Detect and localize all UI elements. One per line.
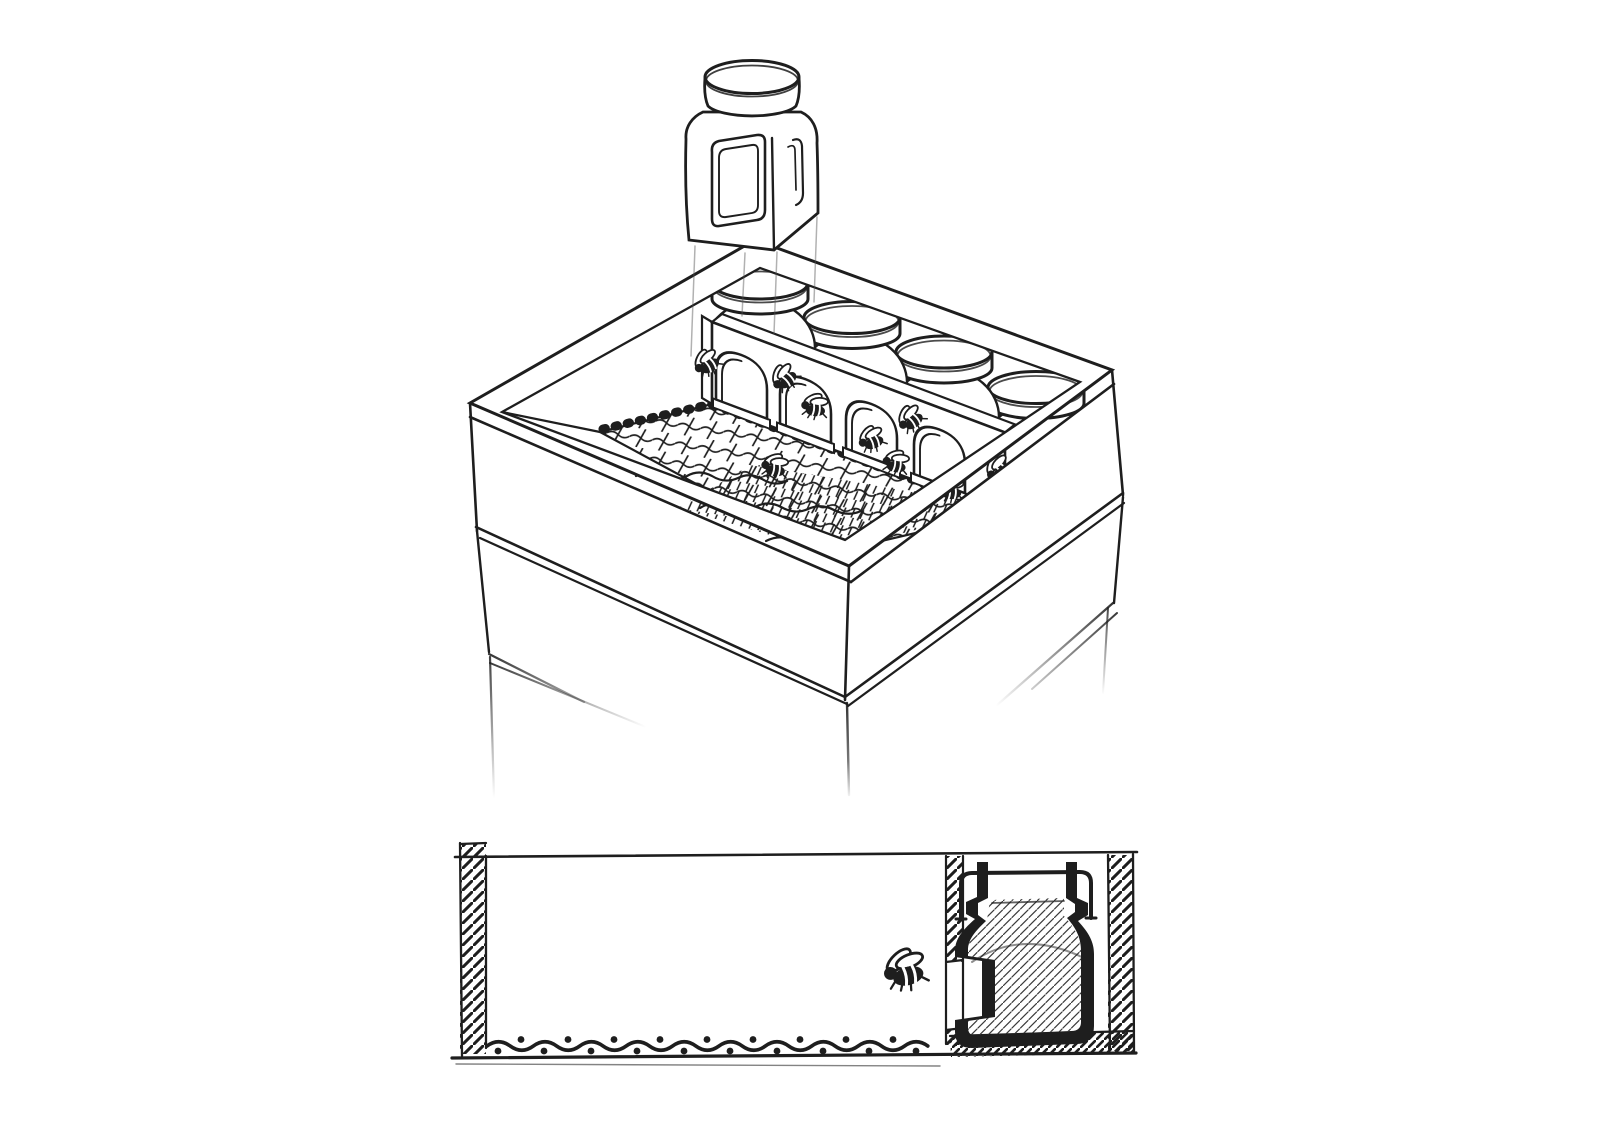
- jar-body: [686, 112, 818, 250]
- illustration-page: Hand-drawn ink diagram of a comb-honey b…: [0, 0, 1600, 1131]
- beehive-diagram: Hand-drawn ink diagram of a comb-honey b…: [0, 0, 1600, 1131]
- cross-section-view: [452, 843, 1137, 1066]
- left-wall-hatch: [460, 843, 486, 1054]
- cross-section-jar: [955, 862, 1096, 1048]
- screen-wave: [487, 1042, 928, 1051]
- jar-lid: [705, 61, 800, 116]
- bee-icon: [881, 943, 929, 993]
- right-wall-hatch: [1108, 855, 1133, 1051]
- top-board: [455, 852, 1137, 857]
